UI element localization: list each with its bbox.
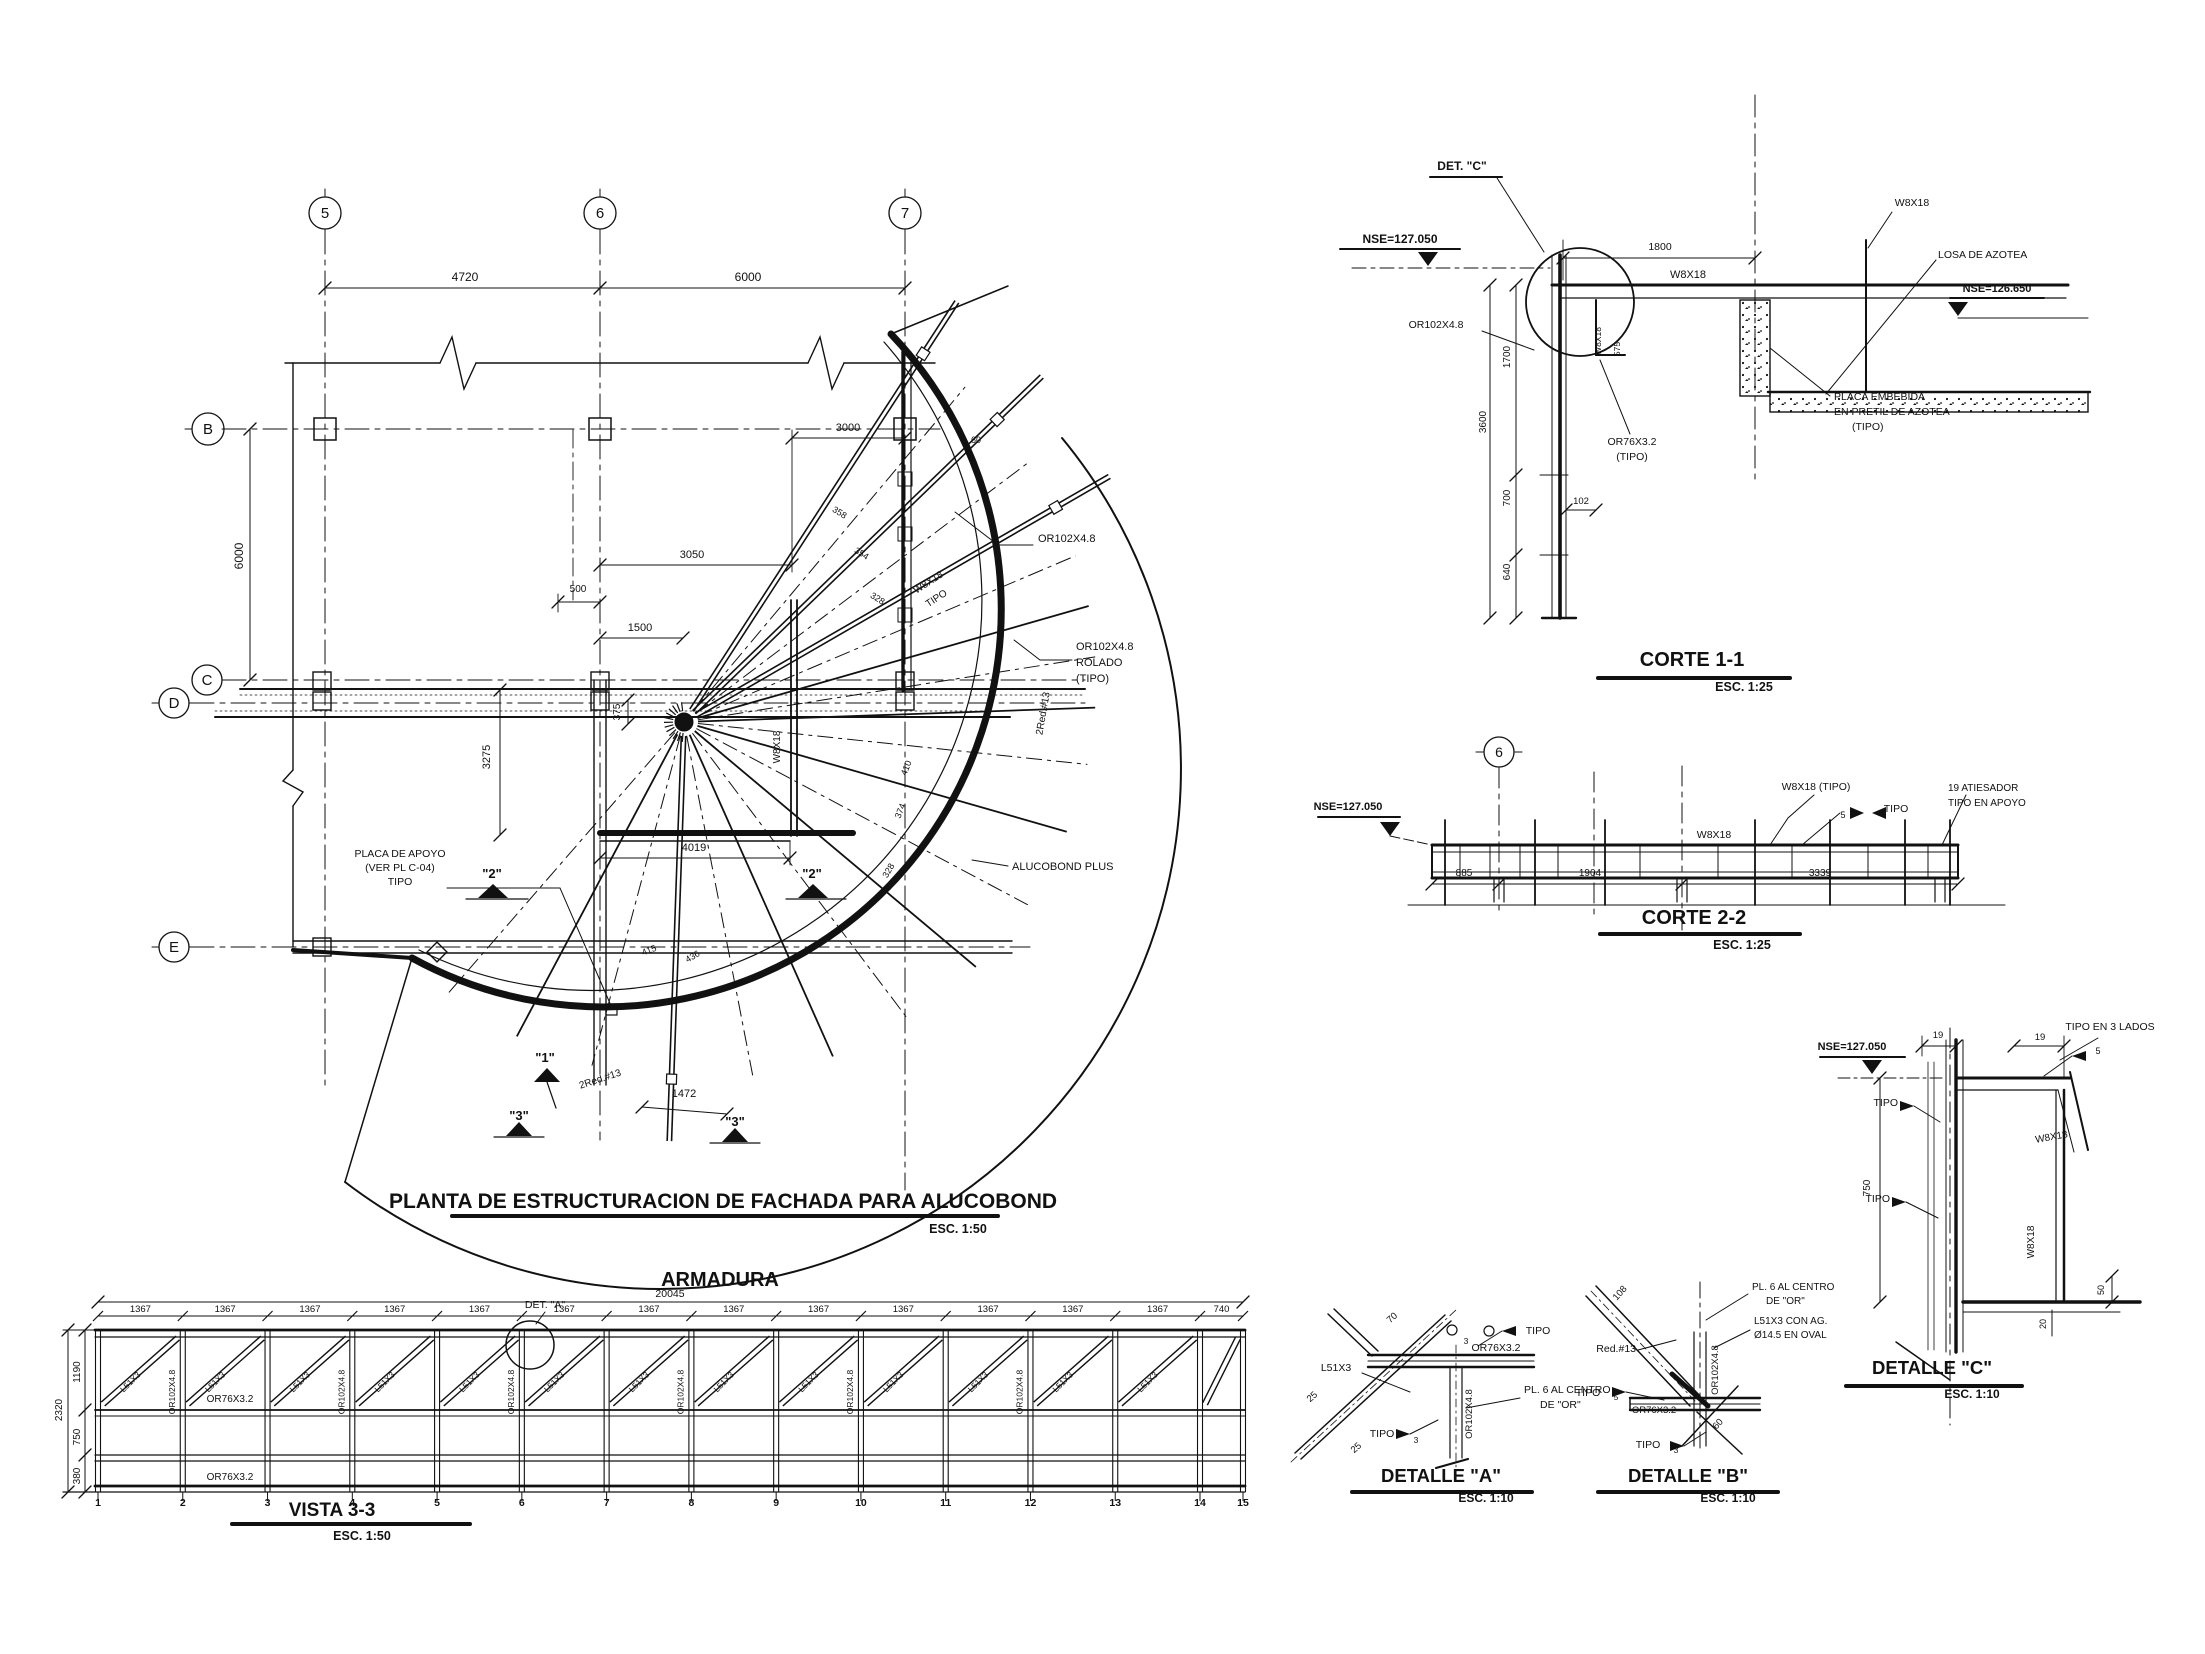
- weld-size: 3: [1674, 1445, 1679, 1455]
- truss-diagonal-label: L51X3: [966, 1369, 991, 1394]
- section-marker: "1": [535, 1050, 555, 1065]
- note: (VER PL C-04): [365, 862, 435, 874]
- note: DE "OR": [1766, 1296, 1805, 1307]
- drawing-sheet: 567BCDE472060006000300030505001500375327…: [0, 0, 2205, 1654]
- corte-2-2-title: CORTE 2-2: [1642, 907, 1746, 929]
- note: EN PRETIL DE AZOTEA: [1834, 406, 1950, 418]
- plan-title: PLANTA DE ESTRUCTURACION DE FACHADA PARA…: [389, 1190, 1057, 1213]
- dim: 700: [1502, 489, 1513, 506]
- corte-1-1: [1340, 95, 2090, 678]
- truss-panel-dim: 1367: [893, 1304, 914, 1315]
- grid-bubble-D: D: [169, 695, 180, 712]
- truss-vertical-label: OR102X4.8: [845, 1370, 855, 1415]
- member-label: OR76X3.2: [207, 1472, 254, 1483]
- truss-node-number: 14: [1194, 1497, 1206, 1509]
- plan-fan-rays: [449, 301, 1111, 1142]
- truss-node-number: 7: [604, 1497, 610, 1509]
- member-label: TIPO: [924, 588, 950, 610]
- member-label: OR102X4.8: [1409, 319, 1464, 331]
- member-label: OR76X3.2: [1632, 1405, 1676, 1416]
- detalle-c-title: DETALLE "C": [1872, 1357, 1992, 1378]
- detalle-b-scale: ESC. 1:10: [1700, 1491, 1756, 1505]
- plan-view: [152, 189, 1181, 1289]
- grid-bubble-6: 6: [596, 205, 604, 222]
- truss-panel-dim: 1367: [554, 1304, 575, 1315]
- truss-panel-dim: 740: [1214, 1304, 1230, 1315]
- plan-annotations: 567BCDE472060006000300030505001500375327…: [169, 205, 1134, 1129]
- member-label: W8X18: [1895, 197, 1930, 209]
- truss-panel-dim: 1367: [1062, 1304, 1083, 1315]
- truss-diagonal-label: L51X3: [1135, 1369, 1160, 1394]
- plan-scale: ESC. 1:50: [929, 1222, 987, 1236]
- truss-diagonal-label: L51X3: [288, 1369, 313, 1394]
- note: DE "OR": [1540, 1399, 1581, 1411]
- truss-node-number: 8: [688, 1497, 694, 1509]
- note: PLACA EMBEBIDA: [1834, 391, 1925, 403]
- dim: 50: [2096, 1285, 2106, 1295]
- truss-node-number: 12: [1025, 1497, 1037, 1509]
- dim: 4720: [452, 270, 479, 284]
- dim: 6000: [735, 270, 762, 284]
- corte-1-1-title: CORTE 1-1: [1640, 649, 1744, 671]
- dim: 1500: [628, 622, 652, 634]
- note: L51X3 CON AG.: [1754, 1316, 1827, 1327]
- truss-diagonal-label: L51X3: [796, 1369, 821, 1394]
- grid-bubble-7: 7: [901, 205, 909, 222]
- level: NSE=127.050: [1362, 232, 1437, 246]
- corte-1-1-scale: ESC. 1:25: [1715, 680, 1773, 694]
- truss-panel-dim: 1367: [215, 1304, 236, 1315]
- dim: 1190: [72, 1361, 83, 1383]
- note: PLACA DE APOYO: [354, 848, 445, 860]
- corte-1-1-annotations: DET. "C"NSE=127.050W8X18OR102X4.8W8X1857…: [1362, 159, 2031, 580]
- member-label: OR102X4.8: [1710, 1345, 1721, 1395]
- grid-bubble-C: C: [202, 672, 213, 689]
- truss-node-number: 11: [940, 1497, 951, 1509]
- level: NSE=127.050: [1314, 801, 1383, 813]
- weld-size: 5: [1840, 810, 1845, 820]
- dim: 380: [72, 1467, 83, 1484]
- member-label: W8X18 (TIPO): [1782, 781, 1851, 793]
- truss-panel-dim: 1367: [638, 1304, 659, 1315]
- truss-node-number: 3: [265, 1497, 271, 1509]
- dim: 2320: [54, 1398, 65, 1421]
- note: (TIPO): [1852, 421, 1884, 433]
- dim: 60: [1711, 1417, 1726, 1432]
- member-label: W8X18: [1697, 829, 1732, 841]
- armadura-truss: [62, 1296, 1249, 1524]
- truss-node-number: 10: [855, 1497, 867, 1509]
- detalle-c-scale: ESC. 1:10: [1944, 1387, 2000, 1401]
- dim: 410: [899, 759, 914, 777]
- truss-vertical-label: OR102X4.8: [167, 1370, 177, 1415]
- truss-diagonal-label: L51X3: [542, 1369, 567, 1394]
- grid-bubble-6: 6: [1495, 744, 1503, 760]
- dim: 1904: [1579, 868, 1602, 879]
- armadura-annotations: 20045DET. "A"OR76X3.2OR76X3.211907503802…: [54, 1288, 1249, 1509]
- detalle-a-scale: ESC. 1:10: [1458, 1491, 1514, 1505]
- level: NSE=126.650: [1963, 283, 2032, 295]
- truss-node-number: 9: [773, 1497, 779, 1509]
- truss-node-number: 1: [95, 1497, 101, 1509]
- corte-2-2-symbols: [1380, 807, 1886, 836]
- detalle-a-annotations: 703TIPOOR76X3.2L51X3PL. 6 AL CENTRODE "O…: [1305, 1311, 1611, 1456]
- weld-size: 3: [1414, 1435, 1419, 1445]
- truss-node-number: 2: [180, 1497, 186, 1509]
- weld-size: 5: [1614, 1392, 1619, 1402]
- dim: 3275: [481, 745, 493, 769]
- truss-panel-dim: 1367: [808, 1304, 829, 1315]
- note: TIPO EN APOYO: [1948, 798, 2026, 809]
- member-label: Red.#13: [1596, 1343, 1636, 1355]
- corte-2-2-scale: ESC. 1:25: [1713, 938, 1771, 952]
- truss-node-number: 5: [434, 1497, 440, 1509]
- note: Ø14.5 EN OVAL: [1754, 1330, 1827, 1341]
- dim: 415: [640, 943, 658, 958]
- level: NSE=127.050: [1818, 1041, 1887, 1053]
- dim: 19: [2035, 1032, 2046, 1043]
- truss-diagonal-label: L51X3: [627, 1369, 652, 1394]
- truss-diagonal-label: L51X3: [457, 1369, 482, 1394]
- truss-diagonal-label: L51X3: [203, 1369, 228, 1394]
- note: 19 ATIESADOR: [1948, 783, 2018, 794]
- member-label: (TIPO): [1616, 451, 1648, 463]
- member-label: OR76X3.2: [1471, 1342, 1520, 1354]
- member-label: OR102X4.8: [1464, 1389, 1475, 1439]
- truss-node-number: 6: [519, 1497, 525, 1509]
- note: TIPO EN 3 LADOS: [2065, 1021, 2154, 1033]
- note: TIPO: [388, 876, 413, 888]
- truss-diagonal-label: L51X3: [881, 1369, 906, 1394]
- truss-panel-dim: 1367: [130, 1304, 151, 1315]
- truss-panel-dim: 1367: [299, 1304, 320, 1315]
- dim: 19: [1933, 1030, 1944, 1041]
- note: LOSA DE AZOTEA: [1938, 249, 2027, 261]
- detalle-b-title: DETALLE "B": [1628, 1465, 1748, 1486]
- note: TIPO: [1636, 1439, 1661, 1451]
- corte-2-2-annotations: 6NSE=127.050W8X18W8X18 (TIPO)5TIPO19 ATI…: [1314, 744, 2026, 879]
- truss-diagonal-label: L51X3: [372, 1369, 397, 1394]
- detalle-b: [1586, 1282, 1778, 1492]
- member-label: OR76X3.2: [1607, 436, 1656, 448]
- dim: 1800: [1648, 241, 1672, 253]
- grid-bubble-5: 5: [321, 205, 329, 222]
- dim: 6000: [232, 542, 246, 569]
- truss-panel-dim: 1367: [384, 1304, 405, 1315]
- member-label: W8X18: [2026, 1225, 2037, 1258]
- armadura-title: ARMADURA: [661, 1269, 779, 1291]
- truss-diagonal-label: L51X3: [1051, 1369, 1076, 1394]
- dim: 108: [1611, 1284, 1630, 1303]
- member-label: (TIPO): [1076, 673, 1109, 685]
- truss-diagonal-label: L51X3: [711, 1369, 736, 1394]
- dim: 575: [1612, 342, 1622, 356]
- detail-ref: DET. "C": [1437, 159, 1486, 173]
- truss-vertical-label: OR102X4.8: [675, 1370, 685, 1415]
- note: TIPO: [1370, 1428, 1395, 1440]
- dim: 885: [1456, 868, 1473, 879]
- member-label: W8X18: [1670, 269, 1706, 281]
- dim: 60: [971, 435, 981, 445]
- dim: 500: [570, 584, 587, 595]
- dim: 102: [1573, 496, 1589, 507]
- member-label: OR102X4.8: [1038, 533, 1095, 545]
- dim: 640: [1502, 563, 1513, 580]
- member-label: 2Red.#13: [1034, 691, 1052, 736]
- member-label: ALUCOBOND PLUS: [1012, 861, 1113, 873]
- dim: 1700: [1502, 345, 1513, 368]
- dim: 1472: [672, 1088, 696, 1100]
- member-label: ROLADO: [1076, 657, 1123, 669]
- dim: 4019: [682, 842, 706, 854]
- dim: 20: [2038, 1319, 2048, 1329]
- member-label: OR76X3.2: [207, 1394, 254, 1405]
- truss-panel-dim: 1367: [469, 1304, 490, 1315]
- truss-vertical-label: OR102X4.8: [336, 1370, 346, 1415]
- dim: 750: [72, 1428, 83, 1445]
- section-marker: "3": [725, 1114, 745, 1129]
- detalle-c-symbols: [1862, 1051, 2086, 1207]
- section-marker: "2": [482, 866, 502, 881]
- truss-diagonal-label: L51X3: [118, 1369, 143, 1394]
- truss-vertical-label: OR102X4.8: [1014, 1370, 1024, 1415]
- dim: 358: [831, 504, 849, 520]
- dim: 3050: [680, 549, 704, 561]
- section-marker: "2": [802, 866, 822, 881]
- dim: 70: [1385, 1311, 1400, 1326]
- truss-node-number: 15: [1237, 1497, 1249, 1509]
- dim: 3000: [836, 422, 860, 434]
- dim: 436: [683, 948, 701, 964]
- dim: 25: [1305, 1390, 1320, 1405]
- armadura-generated-members: [93, 1311, 1248, 1501]
- dim: 375: [612, 703, 623, 720]
- member-label: L51X3: [1321, 1362, 1352, 1374]
- member-label: W8X18: [1593, 327, 1603, 355]
- truss-panel-dim: 1367: [1147, 1304, 1168, 1315]
- weld-size: 3: [1464, 1336, 1469, 1346]
- truss-panel-dim: 1367: [978, 1304, 999, 1315]
- note: TIPO: [1884, 803, 1909, 815]
- member-label: W8X18: [772, 730, 783, 763]
- note: PL. 6 AL CENTRO: [1752, 1282, 1835, 1293]
- dim: 3600: [1478, 410, 1489, 433]
- note: TIPO: [1576, 1387, 1601, 1399]
- note: TIPO: [1526, 1325, 1551, 1337]
- member-label: OR102X4.8: [1076, 641, 1133, 653]
- truss-panel-dim: 1367: [723, 1304, 744, 1315]
- truss-node-number: 13: [1109, 1497, 1121, 1509]
- section-marker: "3": [509, 1108, 529, 1123]
- plan-filled-symbols: [478, 884, 828, 1142]
- corte-2-2: [1318, 737, 2005, 934]
- detalle-b-annotations: 108PL. 6 AL CENTRODE "OR"L51X3 CON AG.Ø1…: [1576, 1282, 1835, 1455]
- dim: 750: [1862, 1179, 1873, 1196]
- structural-drawing: 567BCDE472060006000300030505001500375327…: [0, 0, 2205, 1654]
- weld-size: 5: [2095, 1046, 2100, 1056]
- dim: 25: [1349, 1441, 1364, 1456]
- grid-bubble-E: E: [169, 939, 179, 956]
- detalle-a-title: DETALLE "A": [1381, 1465, 1501, 1486]
- vista-3-3-title: VISTA 3-3: [289, 1500, 376, 1521]
- note: TIPO: [1873, 1097, 1898, 1109]
- vista-3-3-scale: ESC. 1:50: [333, 1529, 391, 1543]
- dim: 3339: [1809, 868, 1832, 879]
- truss-vertical-label: OR102X4.8: [506, 1370, 516, 1415]
- grid-bubble-B: B: [203, 421, 213, 438]
